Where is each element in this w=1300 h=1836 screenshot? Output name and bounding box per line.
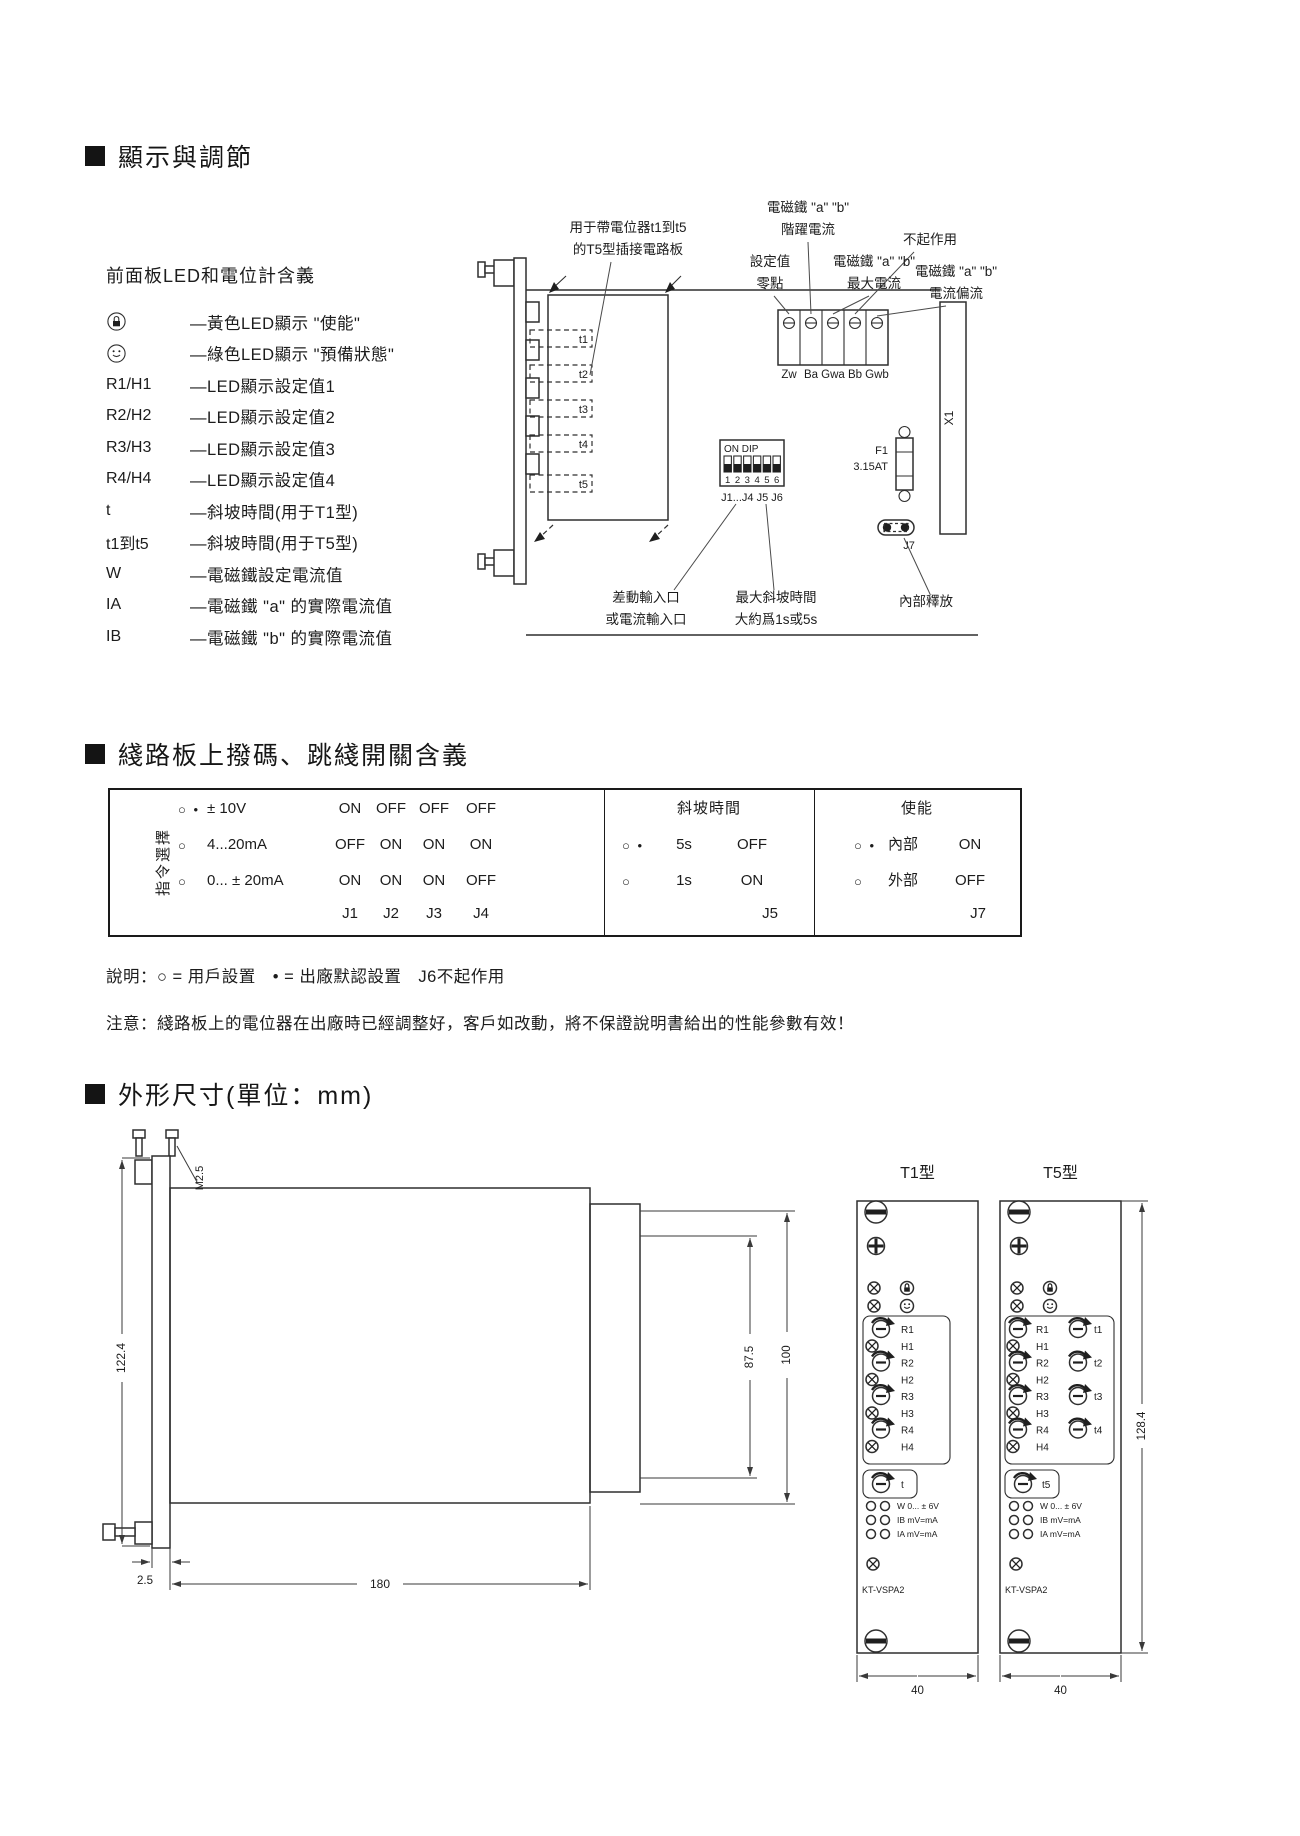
jumper-name: J4 xyxy=(456,904,506,924)
section-bullet-icon xyxy=(85,146,105,166)
fuse-name: F1 xyxy=(875,445,888,457)
cross-screw-icon xyxy=(1011,1238,1028,1255)
potentiometer-icon xyxy=(1009,1418,1032,1439)
measure-label-w: W 0... ± 6V xyxy=(897,1501,939,1511)
row-mark: ○ xyxy=(178,872,188,892)
pot-label: R2 xyxy=(1036,1359,1049,1370)
led-icon xyxy=(867,1558,879,1570)
legend-desc: —黃色LED顯示 "使能" xyxy=(190,310,360,334)
legend-title: 前面板LED和電位計含義 xyxy=(106,262,315,288)
measure-label-w: W 0... ± 6V xyxy=(1040,1501,1082,1511)
callout-t5-board: 用于帶電位器t1到t5 xyxy=(569,220,686,235)
jumper-state: OFF xyxy=(722,835,782,855)
terminal-label: Gwb xyxy=(865,369,889,381)
jumper-state: OFF xyxy=(942,871,998,891)
outline-side-view: M2.5 122.4 87.5 100 xyxy=(95,1126,815,1606)
pot-label: t5 xyxy=(1042,1480,1051,1491)
jumper-name: J7 xyxy=(950,904,1006,924)
dim-40: 40 xyxy=(857,1655,978,1697)
terminal-label: Gwa xyxy=(821,369,845,381)
jumper-state: ON xyxy=(456,835,506,855)
pot-label: t4 xyxy=(1094,1426,1103,1437)
t5-daughter-board xyxy=(534,276,681,542)
row-mark: ○ • xyxy=(854,836,876,856)
potentiometer-icon xyxy=(872,1418,895,1439)
terminal-label: Bb xyxy=(848,369,862,381)
legend-desc: —LED顯示設定值4 xyxy=(190,467,335,491)
led-legend: —黃色LED顯示 "使能" —綠色LED顯示 "預備狀態" R1/H1 —LED… xyxy=(106,306,394,653)
ready-led-smiley-icon xyxy=(901,1300,914,1313)
pot-label: t3 xyxy=(1094,1392,1103,1403)
callout-setpoint-zero: 零點 xyxy=(757,276,784,291)
dim-m25-label: M2.5 xyxy=(194,1166,206,1190)
section-bullet-icon xyxy=(85,744,105,764)
jumper-name: J5 xyxy=(740,904,800,924)
dim-180-label: 180 xyxy=(370,1577,390,1591)
dim-122-4-label: 122.4 xyxy=(114,1343,128,1373)
pot-label: R4 xyxy=(901,1426,914,1437)
measure-label-ib: IB mV=mA xyxy=(1040,1515,1081,1525)
dip-on-label: ON DIP xyxy=(724,444,759,455)
cmd-row-label: 0... ± 20mA xyxy=(207,871,284,891)
pot-label-t1: t1 xyxy=(579,334,588,346)
pot-label-t2: t2 xyxy=(579,369,588,381)
potentiometer-icon xyxy=(1009,1384,1032,1405)
measure-led-grid xyxy=(1010,1502,1033,1539)
dip-number: 5 xyxy=(764,475,769,486)
green-led-smiley-icon xyxy=(106,343,190,364)
potentiometer-icon xyxy=(1009,1351,1032,1372)
legend-key: W xyxy=(106,565,190,583)
legend-key: R2/H2 xyxy=(106,407,190,425)
legend-desc: —LED顯示設定值3 xyxy=(190,436,335,460)
potentiometer-icon xyxy=(872,1317,895,1338)
led-icon xyxy=(868,1282,880,1294)
terminal-label: Zw xyxy=(781,369,797,381)
section-title: 綫路板上撥碼、跳綫開關含義 xyxy=(118,736,469,772)
legend-key: R4/H4 xyxy=(106,470,190,488)
smiley-icon xyxy=(106,343,127,364)
pot-label: t2 xyxy=(1094,1359,1103,1370)
legend-desc: —斜坡時間(用于T5型) xyxy=(190,530,358,554)
x1-label: X1 xyxy=(942,410,956,425)
legend-desc: —綠色LED顯示 "預備狀態" xyxy=(190,341,394,365)
legend-row: —黃色LED顯示 "使能" xyxy=(106,306,394,338)
led-label: H2 xyxy=(901,1376,914,1387)
dip-number: 4 xyxy=(754,475,759,486)
legend-row: IA —電磁鐵 "a" 的實際電流值 xyxy=(106,590,394,622)
legend-row: R1/H1 —LED顯示設定值1 xyxy=(106,369,394,401)
dim-100: 100 xyxy=(640,1211,795,1504)
panel-t1: T1型 R1 H1 R2 H2 R3 H3 R4 H4 xyxy=(857,1164,978,1697)
panel-screw-icon xyxy=(865,1630,887,1652)
potentiometer-icon xyxy=(1009,1317,1032,1338)
legend-desc: —LED顯示設定值2 xyxy=(190,404,335,428)
led-label: H4 xyxy=(1036,1443,1049,1454)
potentiometer-icon xyxy=(1069,1317,1092,1338)
led-icon xyxy=(866,1441,878,1453)
pot-label: R4 xyxy=(1036,1426,1049,1437)
led-icon xyxy=(866,1374,878,1386)
led-label: H2 xyxy=(1036,1376,1049,1387)
panel-screw-icon xyxy=(1008,1201,1030,1223)
jumper-state: ON xyxy=(409,871,459,891)
callout-setpoint-zero: 設定值 xyxy=(750,254,791,269)
section-display-adjust: 顯示與調節 xyxy=(85,138,253,174)
model-label: KT-VSPA2 xyxy=(862,1585,904,1595)
legend-row: R2/H2 —LED顯示設定值2 xyxy=(106,401,394,433)
legend-desc: —電磁鐵設定電流值 xyxy=(190,562,343,586)
pot-label: t xyxy=(901,1480,904,1491)
command-select-label: 指令選擇 xyxy=(152,807,172,917)
dim-128-4-label: 128.4 xyxy=(1136,1411,1148,1440)
jumper-state: ON xyxy=(942,835,998,855)
row-mark: ○ xyxy=(854,872,864,892)
legend-key: R1/H1 xyxy=(106,376,190,394)
potentiometer-icon xyxy=(872,1384,895,1405)
jumper-state: OFF xyxy=(409,799,459,819)
dip-jumper-label: J1...J4 J5 J6 xyxy=(721,492,783,504)
dim-100-label: 100 xyxy=(781,1345,793,1364)
pot-label: t1 xyxy=(1094,1325,1103,1336)
panel-screw-icon xyxy=(865,1201,887,1223)
led-label: H3 xyxy=(901,1409,914,1420)
diagram-callouts: 用于帶電位器t1到t5 的T5型插接電路板 電磁鐵 "a" "b" 階躍電流 不… xyxy=(569,199,997,627)
fuse-f1: F1 3.15AT xyxy=(853,427,913,502)
pot-label-t4: t4 xyxy=(579,439,588,451)
led-icon xyxy=(1011,1300,1023,1312)
side-bracket xyxy=(103,1130,178,1548)
row-mark: ○ xyxy=(622,872,632,892)
measure-label-ib: IB mV=mA xyxy=(897,1515,938,1525)
ramp-option: 1s xyxy=(662,871,706,891)
callout-max-ramp: 大約爲1s或5s xyxy=(735,612,818,627)
jumper-j7: J7 xyxy=(878,520,915,552)
enable-option: 內部 xyxy=(888,835,918,855)
led-icon xyxy=(866,1407,878,1419)
jumper-state: ON xyxy=(409,835,459,855)
callout-bias-current: 電流偏流 xyxy=(929,286,983,301)
legend-row: t1到t5 —斜坡時間(用于T5型) xyxy=(106,527,394,559)
panel-t5-title: T5型 xyxy=(1043,1164,1078,1182)
fuse-rating: 3.15AT xyxy=(853,461,888,473)
jumper-state: OFF xyxy=(456,871,506,891)
jumper-table: 指令選擇 ○ • ± 10V ON OFF OFF OFF ○ 4...20mA… xyxy=(108,788,1022,937)
datasheet-page: 顯示與調節 前面板LED和電位計含義 —黃色LED顯示 "使能" xyxy=(0,0,1300,1836)
yellow-led-lock-icon xyxy=(106,311,190,332)
terminal-label: Ba xyxy=(804,369,819,381)
enable-led-lock-icon xyxy=(901,1282,914,1295)
jumper-name: J3 xyxy=(409,904,459,924)
card-body xyxy=(170,1188,640,1503)
legend-key: IA xyxy=(106,596,190,614)
legend-row: —綠色LED顯示 "預備狀態" xyxy=(106,338,394,370)
component-comb xyxy=(526,302,539,474)
legend-row: R3/H3 —LED顯示設定值3 xyxy=(106,432,394,464)
led-icon xyxy=(1007,1407,1019,1419)
callout-max-current: 最大電流 xyxy=(847,276,901,291)
led-icon xyxy=(1010,1558,1022,1570)
dip-number: 1 xyxy=(725,475,730,486)
model-label: KT-VSPA2 xyxy=(1005,1585,1047,1595)
potentiometer-icon xyxy=(1014,1472,1037,1493)
x1-connector: X1 xyxy=(940,302,966,534)
led-icon xyxy=(1007,1340,1019,1352)
ramp-header: 斜坡時間 xyxy=(604,799,814,819)
pot-label: R3 xyxy=(901,1392,914,1403)
front-bracket xyxy=(478,258,526,584)
j7-label: J7 xyxy=(903,540,915,552)
pot-label: R2 xyxy=(901,1359,914,1370)
callout-step-current: 階躍電流 xyxy=(781,222,835,237)
dim-87-5: 87.5 xyxy=(640,1236,757,1478)
dim-87-5-label: 87.5 xyxy=(744,1346,756,1368)
enable-option: 外部 xyxy=(888,871,918,891)
section-dimensions: 外形尺寸(單位：mm) xyxy=(85,1076,373,1112)
pot-label: R1 xyxy=(901,1325,914,1336)
pot-label: R1 xyxy=(1036,1325,1049,1336)
measure-label-ia: IA mV=mA xyxy=(1040,1529,1081,1539)
legend-desc: —LED顯示設定值1 xyxy=(190,373,335,397)
led-label: H1 xyxy=(901,1342,914,1353)
dim-40-label: 40 xyxy=(911,1685,924,1697)
board-side-diagram: t1 t2 t3 t4 t5 Zw Ba Gwa Bb Gwb xyxy=(478,190,1018,680)
dim-122-4: 122.4 xyxy=(114,1158,150,1546)
callout-bias-current: 電磁鐵 "a" "b" xyxy=(915,263,997,279)
legend-key: R3/H3 xyxy=(106,439,190,457)
led-icon xyxy=(868,1300,880,1312)
led-label: H4 xyxy=(901,1443,914,1454)
legend-desc: —電磁鐵 "a" 的實際電流值 xyxy=(190,593,393,617)
section-title: 顯示與調節 xyxy=(118,138,253,174)
panel-screw-icon xyxy=(1008,1630,1030,1652)
row-mark: ○ • xyxy=(178,800,200,820)
dim-180: 180 xyxy=(170,1506,590,1591)
led-icon xyxy=(866,1340,878,1352)
pot-label-t3: t3 xyxy=(579,404,588,416)
dim-128-4: 128.4 xyxy=(1121,1201,1148,1653)
dip-number: 6 xyxy=(774,475,779,486)
jumper-state: ON xyxy=(722,871,782,891)
legend-desc: —斜坡時間(用于T1型) xyxy=(190,499,358,523)
measure-led-grid xyxy=(867,1502,890,1539)
row-mark: ○ • xyxy=(622,836,644,856)
ready-led-smiley-icon xyxy=(1044,1300,1057,1313)
enable-led-lock-icon xyxy=(1044,1282,1057,1295)
legend-row: W —電磁鐵設定電流值 xyxy=(106,558,394,590)
dim-m25: M2.5 xyxy=(177,1146,206,1190)
callout-step-current: 電磁鐵 "a" "b" xyxy=(767,199,849,215)
led-label: H1 xyxy=(1036,1342,1049,1353)
callout-diff-input: 或電流輸入口 xyxy=(606,612,687,627)
callout-internal-release: 內部釋放 xyxy=(899,594,953,609)
callout-max-ramp: 最大斜坡時間 xyxy=(736,590,817,605)
dim-2-5: 2.5 xyxy=(132,1548,190,1587)
potentiometer-icon xyxy=(1069,1418,1092,1439)
callout-diff-input: 差動輸入口 xyxy=(612,590,680,605)
terminal-block: Zw Ba Gwa Bb Gwb xyxy=(778,310,889,381)
section-dip-meaning: 綫路板上撥碼、跳綫開關含義 xyxy=(85,736,469,772)
dim-40-label: 40 xyxy=(1054,1685,1067,1697)
dip-switch: ON DIP 1 2 3 4 5 6 J1...J4 J5 J6 xyxy=(720,440,784,504)
dim-40: 40 xyxy=(1000,1655,1121,1697)
ramp-option: 5s xyxy=(662,835,706,855)
jumper-state: OFF xyxy=(456,799,506,819)
legend-key: t xyxy=(106,502,190,520)
lock-icon xyxy=(106,311,127,332)
legend-desc: —電磁鐵 "b" 的實際電流值 xyxy=(190,625,393,649)
potentiometer-icon xyxy=(1069,1351,1092,1372)
row-mark: ○ xyxy=(178,836,188,856)
legend-note: 說明：○ = 用戶設置 • = 出廠默認設置 J6不起作用 xyxy=(106,963,505,987)
caution-note: 注意：綫路板上的電位器在出廠時已經調整好，客戶如改動，將不保證說明書給出的性能參… xyxy=(106,1010,854,1034)
panel-t5: T5型 R1 t1 H1 R2 t2 H2 R3 t3 xyxy=(1000,1164,1148,1697)
measure-label-ia: IA mV=mA xyxy=(897,1529,938,1539)
led-icon xyxy=(1007,1374,1019,1386)
cmd-row-label: 4...20mA xyxy=(207,835,267,855)
panel-t1-title: T1型 xyxy=(900,1164,935,1182)
cmd-row-label: ± 10V xyxy=(207,799,246,819)
led-icon xyxy=(1007,1441,1019,1453)
dip-number: 2 xyxy=(735,475,740,486)
led-icon xyxy=(1011,1282,1023,1294)
enable-header: 使能 xyxy=(814,799,1020,819)
callout-inactive: 不起作用 xyxy=(903,232,957,247)
callout-max-current: 電磁鐵 "a" "b" xyxy=(833,253,915,269)
section-bullet-icon xyxy=(85,1084,105,1104)
pot-label: R3 xyxy=(1036,1392,1049,1403)
cross-screw-icon xyxy=(868,1238,885,1255)
callout-t5-board: 的T5型插接電路板 xyxy=(573,241,684,257)
pot-label-t5: t5 xyxy=(579,479,588,491)
legend-row: IB —電磁鐵 "b" 的實際電流值 xyxy=(106,621,394,653)
legend-row: R4/H4 —LED顯示設定值4 xyxy=(106,464,394,496)
legend-row: t —斜坡時間(用于T1型) xyxy=(106,495,394,527)
legend-key: t1到t5 xyxy=(106,530,190,554)
potentiometer-icon xyxy=(872,1472,895,1493)
front-panels: T1型 R1 H1 R2 H2 R3 H3 R4 H4 xyxy=(830,1148,1230,1708)
section-title: 外形尺寸(單位：mm) xyxy=(118,1076,373,1112)
potentiometer-icon xyxy=(1069,1384,1092,1405)
dim-2-5-label: 2.5 xyxy=(137,1575,153,1587)
dip-number: 3 xyxy=(745,475,750,486)
potentiometer-icon xyxy=(872,1351,895,1372)
legend-key: IB xyxy=(106,628,190,646)
led-label: H3 xyxy=(1036,1409,1049,1420)
